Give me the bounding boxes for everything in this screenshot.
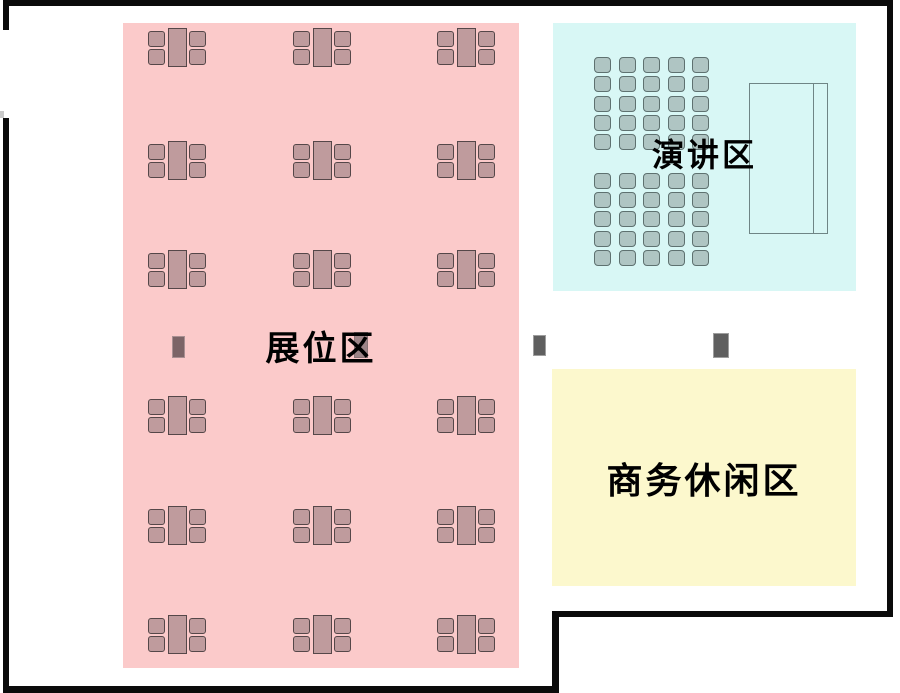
audience-seat (692, 173, 709, 189)
chair (148, 253, 165, 269)
chair (478, 31, 495, 47)
booth-table-cluster (437, 250, 495, 289)
chair (334, 31, 351, 47)
table (313, 615, 332, 654)
chair (437, 636, 454, 652)
wall-right (887, 0, 893, 617)
chair (437, 399, 454, 415)
door-jamb-mark (0, 111, 4, 118)
audience-seat (594, 173, 611, 189)
audience-seat (668, 250, 685, 266)
chair (148, 49, 165, 65)
chair (334, 618, 351, 634)
chair (437, 417, 454, 433)
audience-seat (619, 192, 636, 208)
audience-seat (668, 173, 685, 189)
chair (334, 253, 351, 269)
booth-table-cluster (148, 506, 206, 545)
audience-seat (692, 231, 709, 247)
chair (189, 253, 206, 269)
stage (749, 83, 828, 234)
chair (189, 144, 206, 160)
audience-seat (643, 211, 660, 227)
chair (148, 144, 165, 160)
booth-table-cluster (148, 615, 206, 654)
audience-seat (619, 96, 636, 112)
booth-table-cluster (437, 615, 495, 654)
chair (189, 527, 206, 543)
chair (293, 417, 310, 433)
pillar-4 (713, 333, 729, 358)
audience-seat (619, 57, 636, 73)
chair (293, 509, 310, 525)
chair (148, 399, 165, 415)
audience-seat (594, 231, 611, 247)
booth-table-cluster (437, 28, 495, 67)
chair (437, 144, 454, 160)
chair (478, 271, 495, 287)
audience-seat (619, 173, 636, 189)
audience-seat (643, 96, 660, 112)
chair (437, 509, 454, 525)
table (313, 28, 332, 67)
audience-seat (594, 57, 611, 73)
table (457, 506, 476, 545)
table (457, 250, 476, 289)
pillar-2 (354, 332, 368, 358)
chair (334, 636, 351, 652)
audience-seat (668, 211, 685, 227)
audience-seat (619, 250, 636, 266)
audience-seat (692, 96, 709, 112)
chair (478, 162, 495, 178)
chair (334, 49, 351, 65)
audience-seat (594, 76, 611, 92)
audience-seat (594, 115, 611, 131)
audience-seat (692, 250, 709, 266)
chair (334, 271, 351, 287)
chair (293, 618, 310, 634)
chair (334, 144, 351, 160)
chair (148, 527, 165, 543)
booth-table-cluster (148, 28, 206, 67)
wall-notch-horizontal (552, 611, 893, 617)
pillar-3 (533, 335, 546, 356)
audience-seat (594, 250, 611, 266)
chair (148, 636, 165, 652)
lounge-area (552, 369, 856, 586)
chair (293, 49, 310, 65)
pillar-1 (172, 336, 185, 358)
chair (189, 618, 206, 634)
audience-seat (692, 211, 709, 227)
audience-seat (668, 115, 685, 131)
table (168, 28, 187, 67)
chair (189, 509, 206, 525)
booth-table-cluster (437, 141, 495, 180)
booth-table-cluster (293, 396, 351, 435)
audience-seat (668, 231, 685, 247)
chair (437, 271, 454, 287)
audience-seat (643, 192, 660, 208)
chair (148, 417, 165, 433)
booth-table-cluster (148, 141, 206, 180)
booth-table-cluster (148, 396, 206, 435)
chair (334, 162, 351, 178)
audience-seat (619, 115, 636, 131)
chair (478, 618, 495, 634)
chair (478, 49, 495, 65)
table (313, 250, 332, 289)
audience-seat (668, 76, 685, 92)
table (457, 615, 476, 654)
table (313, 506, 332, 545)
booth-table-cluster (293, 615, 351, 654)
chair (148, 31, 165, 47)
audience-seat (692, 76, 709, 92)
chair (478, 399, 495, 415)
audience-seat (594, 192, 611, 208)
audience-seat (594, 211, 611, 227)
audience-seat (594, 134, 611, 150)
table (457, 396, 476, 435)
audience-seat (619, 211, 636, 227)
audience-seat (643, 115, 660, 131)
chair (478, 417, 495, 433)
chair (189, 162, 206, 178)
chair (437, 527, 454, 543)
chair (293, 253, 310, 269)
audience-seat (668, 57, 685, 73)
booth-table-cluster (148, 250, 206, 289)
chair (478, 253, 495, 269)
chair (189, 49, 206, 65)
chair (334, 527, 351, 543)
chair (148, 618, 165, 634)
chair (148, 162, 165, 178)
table (457, 141, 476, 180)
chair (189, 399, 206, 415)
audience-seat (619, 231, 636, 247)
audience-seat (692, 192, 709, 208)
chair (189, 31, 206, 47)
audience-seat (643, 76, 660, 92)
exhibition-floor-plan: 展位区 演讲区 商务休闲区 (0, 0, 900, 693)
wall-notch-vertical (552, 611, 559, 693)
chair (148, 509, 165, 525)
table (457, 28, 476, 67)
audience-seat (594, 96, 611, 112)
wall-top (3, 0, 893, 6)
chair (334, 399, 351, 415)
booth-table-cluster (437, 396, 495, 435)
table (168, 250, 187, 289)
chair (148, 271, 165, 287)
audience-seat (643, 250, 660, 266)
chair (437, 49, 454, 65)
audience-seat (692, 57, 709, 73)
wall-bottom (3, 686, 559, 693)
wall-left-lower (3, 118, 9, 693)
audience-seat (643, 134, 660, 150)
table (313, 396, 332, 435)
chair (334, 509, 351, 525)
booth-table-cluster (293, 28, 351, 67)
chair (437, 253, 454, 269)
chair (437, 31, 454, 47)
audience-seat (643, 57, 660, 73)
audience-seat (692, 134, 709, 150)
chair (293, 144, 310, 160)
audience-seat (668, 134, 685, 150)
table (168, 396, 187, 435)
chair (437, 618, 454, 634)
table (168, 506, 187, 545)
chair (293, 636, 310, 652)
table (313, 141, 332, 180)
chair (293, 271, 310, 287)
chair (189, 271, 206, 287)
audience-seat (643, 231, 660, 247)
chair (293, 399, 310, 415)
chair (293, 527, 310, 543)
chair (478, 527, 495, 543)
table (168, 141, 187, 180)
audience-seat (619, 134, 636, 150)
chair (478, 509, 495, 525)
audience-seat (643, 173, 660, 189)
booth-table-cluster (437, 506, 495, 545)
table (168, 615, 187, 654)
chair (189, 417, 206, 433)
chair (293, 162, 310, 178)
chair (334, 417, 351, 433)
booth-table-cluster (293, 250, 351, 289)
audience-seat (692, 115, 709, 131)
audience-seat (619, 76, 636, 92)
audience-seat (668, 192, 685, 208)
chair (478, 636, 495, 652)
wall-left-upper (3, 0, 9, 30)
chair (437, 162, 454, 178)
chair (189, 636, 206, 652)
stage-inner-line (813, 84, 814, 233)
booth-table-cluster (293, 506, 351, 545)
audience-seat (668, 96, 685, 112)
booth-table-cluster (293, 141, 351, 180)
chair (293, 31, 310, 47)
chair (478, 144, 495, 160)
